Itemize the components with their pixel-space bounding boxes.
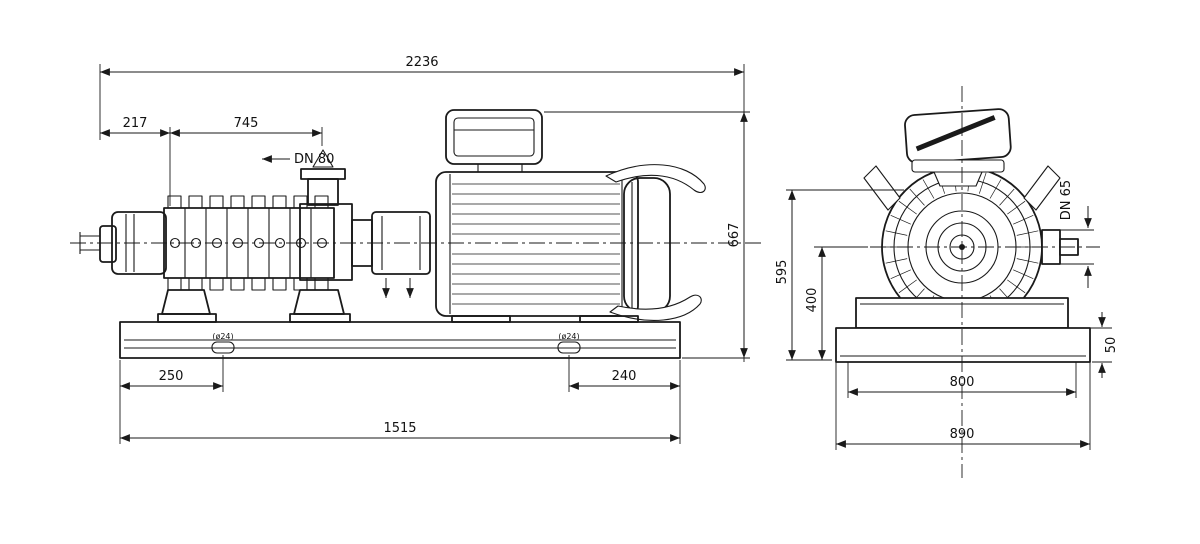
dimension-drawing: (ø24) (ø24) 2236 217 745 DN 80 667 <box>0 0 1200 544</box>
terminal-box-neck <box>934 172 982 186</box>
drawing-canvas: (ø24) (ø24) 2236 217 745 DN 80 667 <box>0 0 1200 544</box>
end-view: 595 400 DN 65 50 800 890 <box>775 86 1119 478</box>
dim-overall-height: 667 <box>727 223 742 248</box>
discharge-head <box>300 150 352 280</box>
coupling-guard <box>372 212 430 298</box>
terminal-box-end <box>904 108 1011 163</box>
pump-feet <box>158 290 350 322</box>
fan-cowl <box>624 178 670 312</box>
anchor-slot-label: (ø24) <box>558 332 579 341</box>
dim-shaft-end: 217 <box>123 116 148 131</box>
side-view: (ø24) (ø24) 2236 217 745 DN 80 667 <box>70 55 764 444</box>
cooling-ribs-top <box>168 196 328 208</box>
dim-base-width-overall: 890 <box>950 427 975 442</box>
dim-base-width: 800 <box>950 375 975 390</box>
lifting-lug-left <box>864 166 900 210</box>
dim-end-overall-height: 595 <box>775 260 790 285</box>
terminal-box-lip <box>912 160 1004 172</box>
anchor-slot-label: (ø24) <box>212 332 233 341</box>
pedestal <box>836 298 1090 362</box>
lifting-lug-right <box>1024 166 1060 210</box>
dim-base-height: 50 <box>1104 337 1119 354</box>
motor-fins <box>452 184 620 304</box>
dim-base-left: 250 <box>159 369 184 384</box>
dim-base-right: 240 <box>612 369 637 384</box>
dim-base-length: 1515 <box>383 421 416 436</box>
terminal-box <box>446 110 542 172</box>
side-view-dimensions: 2236 217 745 DN 80 667 250 240 1515 <box>100 55 750 444</box>
dim-overall-length: 2236 <box>405 55 438 70</box>
motor <box>436 110 705 322</box>
discharge-flange-label: DN 80 <box>294 152 334 167</box>
suction-flange-label: DN 65 <box>1059 180 1074 220</box>
dim-centerline-height: 400 <box>805 288 820 313</box>
motor-body <box>436 172 638 316</box>
dim-suction-to-discharge: 745 <box>234 116 259 131</box>
baseplate: (ø24) (ø24) <box>120 322 680 358</box>
